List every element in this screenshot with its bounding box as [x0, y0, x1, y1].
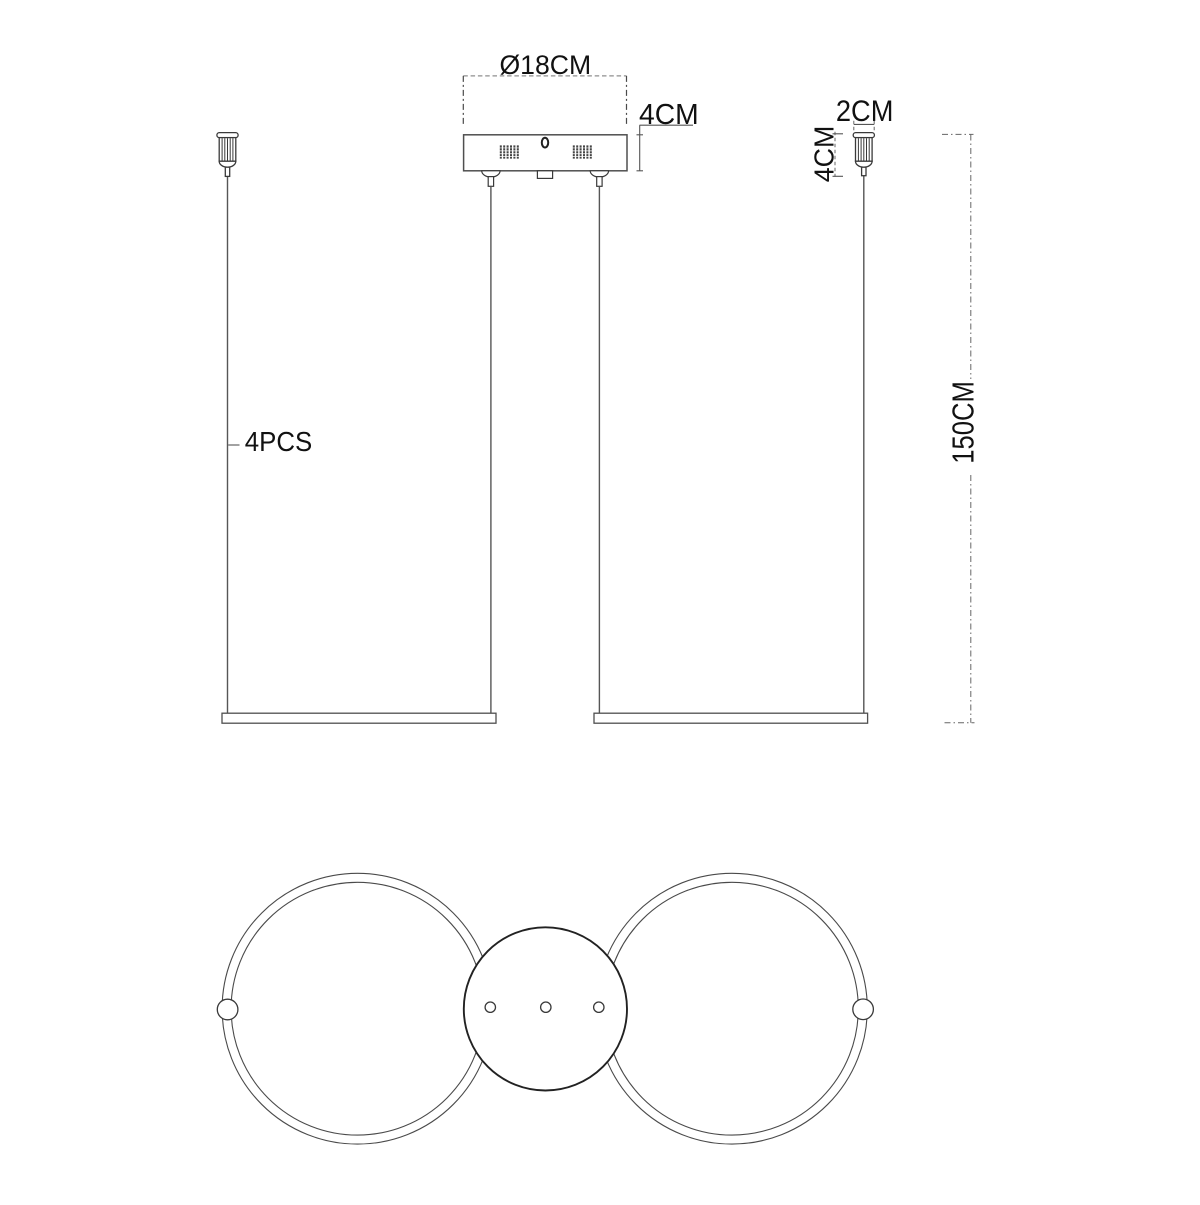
svg-text:2CM: 2CM: [836, 94, 894, 127]
svg-text:4PCS: 4PCS: [245, 426, 312, 457]
svg-text:150CM: 150CM: [945, 381, 980, 464]
